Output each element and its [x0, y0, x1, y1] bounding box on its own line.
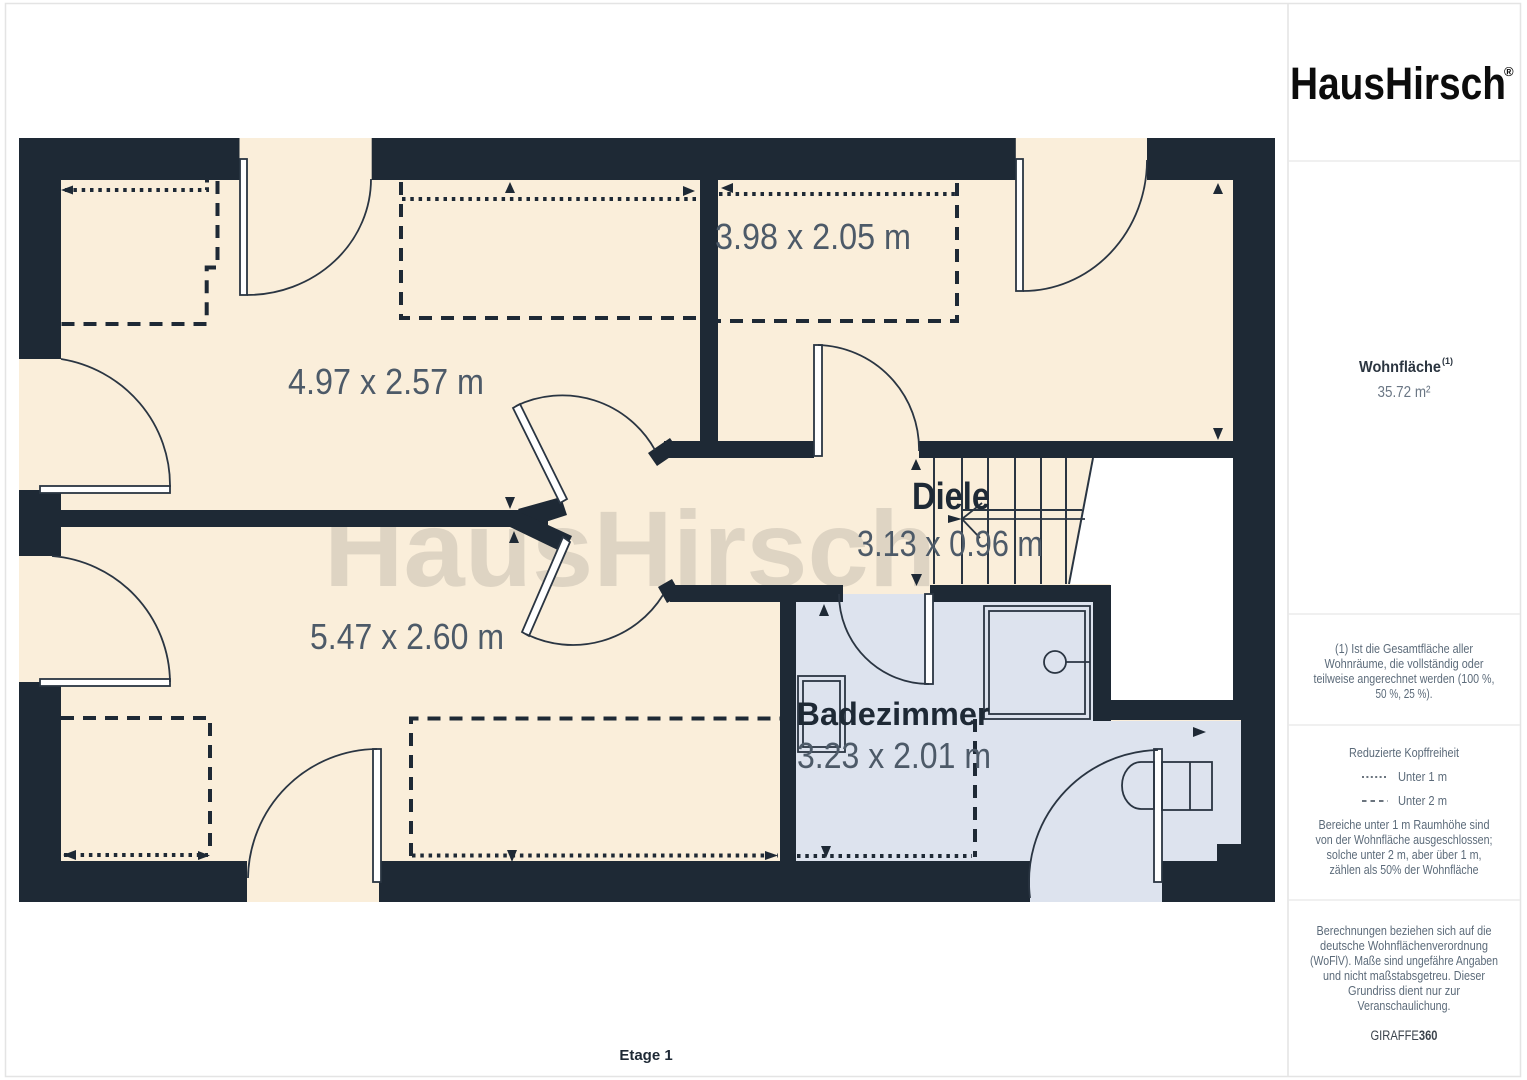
svg-text:3.13 x 0.96 m: 3.13 x 0.96 m: [857, 523, 1043, 564]
svg-text:solche unter 2 m, aber über 1: solche unter 2 m, aber über 1 m,: [1327, 848, 1482, 862]
svg-text:50 %, 25 %).: 50 %, 25 %).: [1376, 687, 1433, 701]
svg-text:zählen als 50% der Wohnfläche: zählen als 50% der Wohnfläche: [1330, 863, 1479, 877]
svg-text:3.98 x 2.05 m: 3.98 x 2.05 m: [715, 216, 911, 257]
svg-text:Unter 2 m: Unter 2 m: [1398, 794, 1447, 808]
svg-text:4.97 x 2.57 m: 4.97 x 2.57 m: [288, 361, 484, 402]
svg-text:Veranschaulichung.: Veranschaulichung.: [1358, 999, 1451, 1013]
svg-text:5.47 x 2.60 m: 5.47 x 2.60 m: [310, 616, 504, 657]
svg-text:HausHirsch: HausHirsch: [324, 488, 936, 609]
svg-text:deutsche Wohnflächenverordnung: deutsche Wohnflächenverordnung: [1320, 939, 1488, 953]
svg-text:Wohnräume, die vollständig ode: Wohnräume, die vollständig oder: [1325, 657, 1484, 671]
svg-text:Etage 1: Etage 1: [619, 1047, 672, 1064]
svg-text:(WoFlV). Maße sind ungefähre A: (WoFlV). Maße sind ungefähre Angaben: [1310, 954, 1498, 968]
svg-text:Grundriss dient nur zur: Grundriss dient nur zur: [1348, 984, 1460, 998]
svg-text:von der Wohnfläche ausgeschlos: von der Wohnfläche ausgeschlossen;: [1316, 833, 1493, 847]
svg-text:(1) Ist die Gesamtfläche aller: (1) Ist die Gesamtfläche aller: [1335, 642, 1473, 656]
svg-text:Berechnungen beziehen sich auf: Berechnungen beziehen sich auf die: [1317, 924, 1492, 938]
svg-text:GIRAFFE360: GIRAFFE360: [1371, 1028, 1438, 1043]
svg-text:Diele: Diele: [912, 476, 990, 518]
svg-text:Reduzierte Kopffreiheit: Reduzierte Kopffreiheit: [1349, 746, 1459, 760]
svg-text:(1): (1): [1442, 356, 1453, 366]
svg-text:Badezimmer: Badezimmer: [797, 696, 990, 732]
svg-text:Unter 1 m: Unter 1 m: [1398, 770, 1447, 784]
svg-text:®: ®: [1504, 64, 1514, 79]
svg-text:3.23 x 2.01 m: 3.23 x 2.01 m: [797, 735, 991, 776]
svg-text:teilweise angerechnet werden (: teilweise angerechnet werden (100 %,: [1314, 672, 1495, 686]
svg-text:und nicht maßstabsgetreu. Dies: und nicht maßstabsgetreu. Dieser: [1323, 969, 1485, 983]
svg-text:Wohnfläche: Wohnfläche: [1359, 359, 1441, 376]
svg-text:Bereiche unter 1 m Raumhöhe si: Bereiche unter 1 m Raumhöhe sind: [1319, 818, 1490, 832]
svg-text:35.72 m²: 35.72 m²: [1378, 384, 1432, 401]
svg-text:HausHirsch: HausHirsch: [1290, 58, 1506, 109]
